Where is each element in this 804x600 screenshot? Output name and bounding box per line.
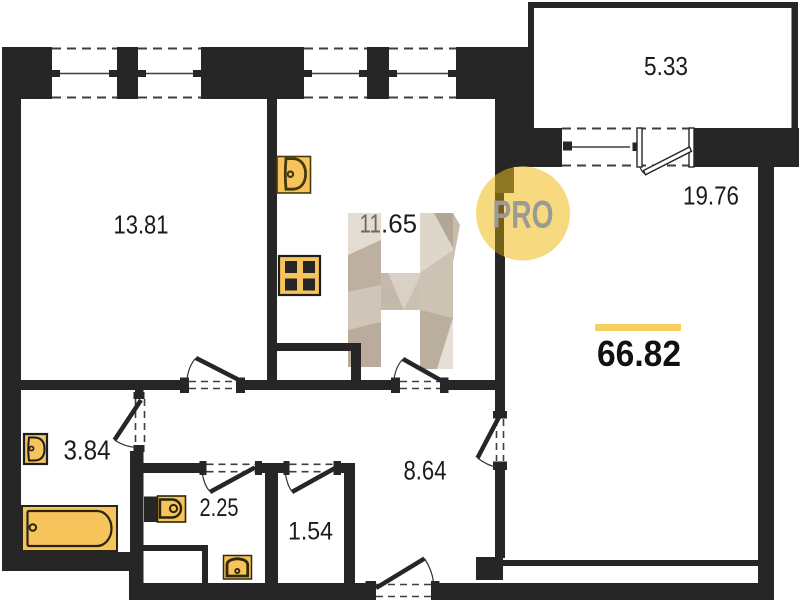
svg-text:8.64: 8.64 xyxy=(404,456,447,486)
svg-text:11: 11 xyxy=(360,209,382,239)
svg-text:13.81: 13.81 xyxy=(114,210,169,240)
svg-text:19.76: 19.76 xyxy=(683,181,739,211)
svg-text:2.25: 2.25 xyxy=(200,494,239,522)
svg-text:5.33: 5.33 xyxy=(644,51,688,81)
svg-text:.65: .65 xyxy=(381,209,417,239)
svg-text:1.54: 1.54 xyxy=(288,518,333,546)
svg-text:66.82: 66.82 xyxy=(597,333,681,374)
svg-text:PRO: PRO xyxy=(493,194,554,237)
svg-text:3.84: 3.84 xyxy=(64,435,111,466)
